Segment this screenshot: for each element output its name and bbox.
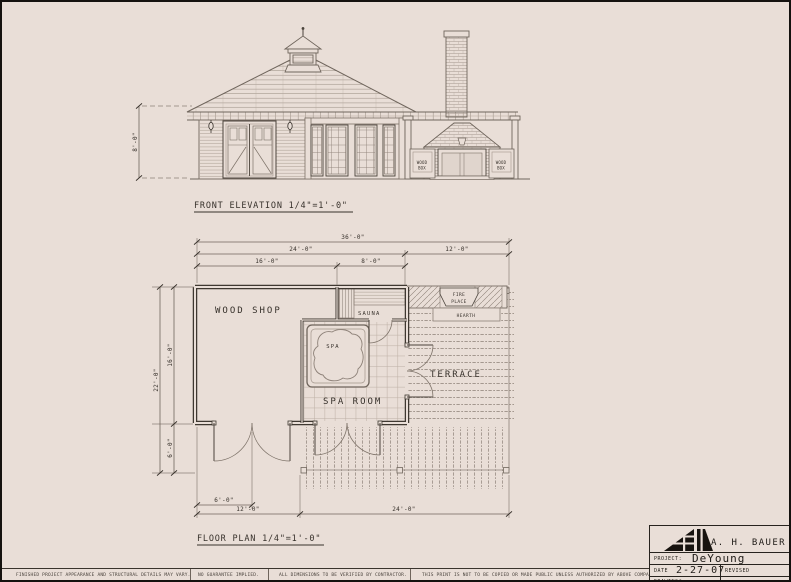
dim-door-offset: 6'-0" [214, 497, 234, 504]
sauna-label: SAUNA [358, 311, 381, 317]
floor-plan-title: FLOOR PLAN 1/4"=1'-0" [197, 534, 321, 544]
wood-box-left-label-line2: BOX [418, 166, 426, 171]
wood-shop-label: WOOD SHOP [215, 306, 282, 316]
footer-divider [268, 569, 269, 581]
wood-box-right-label-line2: BOX [497, 166, 505, 171]
lower-deck [303, 427, 509, 489]
drawing-canvas: WOOD BOX WOOD BOX 8'-0" FRONT ELEVATION … [2, 2, 791, 582]
dim-terrace-width: 12'-0" [445, 246, 468, 253]
title-block-header: A. H. BAUER [650, 526, 790, 552]
barn-door [223, 121, 276, 178]
footer-divider [190, 569, 191, 581]
spa-tub [307, 325, 369, 387]
plan-dimensions-left: 22'-0" 16'-0" 6'-0" [152, 284, 195, 475]
company-logo-icon [663, 528, 715, 552]
dim-shop-depth: 16'-0" [167, 343, 174, 366]
dim-main-width: 24'-0" [289, 246, 312, 253]
floor-plan-drawing: FIRE PLACE HEARTH [152, 234, 514, 545]
dim-elevation-height: 8'-0" [132, 132, 139, 152]
title-block-date-row: DATE 2-27-07 REVISED [650, 564, 790, 576]
hearth-label: HEARTH [457, 313, 476, 319]
dim-bottom-right-width: 24'-0" [392, 506, 415, 513]
elevation-height-dimension: 8'-0" [132, 103, 192, 180]
dim-porch-depth: 6'-0" [167, 438, 174, 458]
french-doors [305, 118, 405, 179]
title-block-drawing-row: DRAWING* [650, 576, 790, 582]
spa-room-label: SPA ROOM [323, 397, 382, 407]
title-block-divider [720, 565, 721, 576]
sauna-heater [339, 289, 354, 318]
footer-divider [410, 569, 411, 581]
sauna-benches [354, 289, 405, 305]
dim-shop-width: 16'-0" [255, 258, 278, 265]
disclaimer-variance: FINISHED PROJECT APPEARANCE AND STRUCTUR… [16, 573, 191, 578]
disclaimer-guarantee: NO GUARANTEE IMPLIED. [198, 573, 259, 578]
company-name: A. H. BAUER [711, 538, 786, 548]
wood-box-right-label-line1: WOOD [496, 160, 507, 165]
project-label: PROJECT: [654, 556, 682, 562]
footer-disclaimer-strip: FINISHED PROJECT APPEARANCE AND STRUCTUR… [2, 568, 651, 582]
date-label: DATE [654, 568, 668, 574]
chimney [444, 31, 469, 117]
date-value: 2-27-07 [676, 565, 725, 576]
wood-box-right: WOOD BOX [489, 149, 514, 178]
terrace-label: TERRACE [430, 370, 482, 380]
fireplace-label-line2: PLACE [451, 299, 467, 305]
fireplace-label-line1: FIRE [453, 292, 465, 298]
dim-overall-depth: 22'-0" [153, 368, 160, 391]
spa-label: SPA [326, 344, 340, 350]
front-elevation-title: FRONT ELEVATION 1/4"=1'-0" [194, 201, 348, 211]
revised-label: REVISED [725, 568, 750, 574]
dim-overall-width: 36'-0" [341, 234, 364, 241]
title-block: A. H. BAUER PROJECT: DeYoung DATE 2-27-0… [649, 525, 791, 582]
plan-dimensions-top: 36'-0" 24'-0" 12'-0" 16'-0" 8'-0" [194, 234, 512, 285]
cupola [285, 27, 321, 72]
drawing-sheet: WOOD BOX WOOD BOX 8'-0" FRONT ELEVATION … [0, 0, 791, 582]
dim-sauna-width: 8'-0" [361, 258, 381, 265]
front-elevation-drawing: WOOD BOX WOOD BOX 8'-0" FRONT ELEVATION … [132, 27, 530, 212]
disclaimer-dimensions: ALL DIMENSIONS TO BE VERIFIED BY CONTRAC… [279, 573, 407, 578]
wood-box-left-label-line1: WOOD [417, 160, 428, 165]
title-block-project-row: PROJECT: DeYoung [650, 552, 790, 564]
title-block-divider [720, 577, 721, 582]
dim-bottom-left-width: 12'-0" [236, 506, 259, 513]
wood-box-left: WOOD BOX [410, 149, 435, 178]
disclaimer-copy: THIS PRINT IS NOT TO BE COPIED OR MADE P… [422, 573, 658, 578]
